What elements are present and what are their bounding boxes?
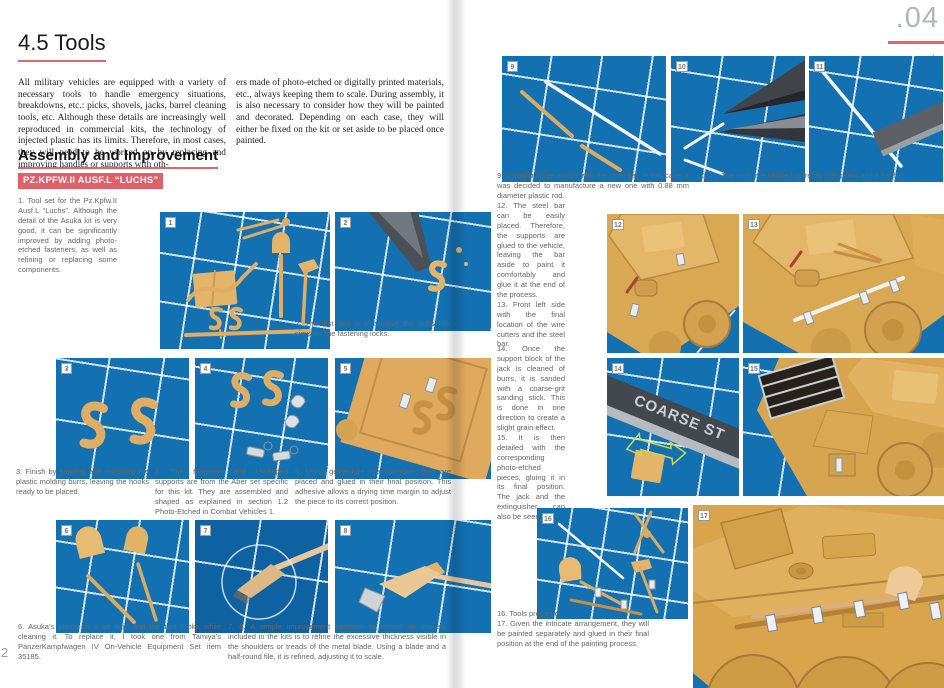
photo-number-badge: 2 xyxy=(340,217,351,228)
photo-11: 11 xyxy=(809,56,943,182)
photo-3-illustration xyxy=(56,358,189,479)
white-rod-shape xyxy=(546,82,660,154)
photo-number-badge: 4 xyxy=(200,363,211,374)
photo-10: 10 xyxy=(671,56,805,182)
photo-11-illustration xyxy=(809,56,943,182)
accent-line xyxy=(888,41,944,44)
s-hook-shape xyxy=(266,374,281,403)
photo-5-illustration xyxy=(335,358,491,479)
photo-13: 13 xyxy=(743,214,944,353)
pe-u-supports-shape xyxy=(285,395,305,427)
broken-shovel-head-shape xyxy=(73,524,105,559)
photo-14-illustration: COARSE ST xyxy=(607,358,739,496)
page-number-right: .04 xyxy=(896,2,939,35)
photo-15-illustration xyxy=(743,358,944,496)
photo-number-badge: 16 xyxy=(542,513,554,524)
caption-10-11: 10, 11. The ends are shaped correctly wi… xyxy=(697,171,905,181)
photo-number-badge: 1 xyxy=(165,217,176,228)
metal-blade-shape xyxy=(359,588,385,612)
plastic-rod-shape xyxy=(522,92,572,136)
section-title: 4.5 Tools xyxy=(18,30,106,62)
photo-10-illustration xyxy=(671,56,805,182)
tow-bar-shape xyxy=(186,330,310,338)
photo-4-illustration xyxy=(195,358,328,479)
s-hook-shape xyxy=(211,309,221,328)
photo-number-badge: 17 xyxy=(698,510,710,521)
hatch-shape xyxy=(641,221,684,252)
photo-12-illustration xyxy=(607,214,739,353)
s-hook-shape xyxy=(231,309,241,328)
shovel-blade-shape xyxy=(237,564,285,598)
caption-16: 16. Tools prepared. xyxy=(497,609,649,619)
s-hook-shape xyxy=(431,263,444,288)
hull-plate-shape xyxy=(340,358,491,479)
photo-9: 9 xyxy=(502,56,666,182)
photo-8-illustration xyxy=(335,520,491,633)
flat-file-shape xyxy=(873,102,943,157)
photo-number-badge: 6 xyxy=(61,525,72,536)
caption-3: 3. Finish by sanding and removing the pl… xyxy=(16,467,149,497)
stowage-box-shape xyxy=(892,370,939,404)
caption-16-17: 16. Tools prepared. 17. Given the intric… xyxy=(497,609,649,649)
page-gutter xyxy=(446,0,466,688)
caption-17: 17. Given the intricate arrangement, the… xyxy=(497,619,649,649)
caption-1: 1. Tool set for the Pz.Kpfw.II Ausf.L “L… xyxy=(18,196,117,275)
photo-6-illustration xyxy=(56,520,189,633)
photo-number-badge: 13 xyxy=(748,219,760,230)
photo-number-badge: 3 xyxy=(61,363,72,374)
photo-number-badge: 8 xyxy=(340,525,351,536)
photo-17: 17 xyxy=(693,505,944,688)
caption-4: 4. The fasteners and U-shaped supports a… xyxy=(155,467,288,516)
white-rod-shape xyxy=(685,124,723,148)
photo-3: 3 xyxy=(56,358,189,479)
shovel-blade-shape xyxy=(379,566,441,598)
photo-9-illustration xyxy=(502,56,666,182)
s-hook-shape xyxy=(84,406,104,444)
pe-clamp-shape xyxy=(836,458,842,472)
shovel-shape xyxy=(272,232,290,316)
photo-number-badge: 7 xyxy=(200,525,211,536)
sprocket-shape xyxy=(336,419,358,441)
stowage-box-shape xyxy=(911,214,944,274)
caption-6: 6. Asuka’s plastic is a bit rigid and th… xyxy=(18,622,221,662)
s-hook-shape xyxy=(134,402,154,440)
photo-7: 7 xyxy=(195,520,328,633)
wheel-hub-shape xyxy=(895,460,915,480)
photo-number-badge: 10 xyxy=(676,61,688,72)
photo-16: 16 xyxy=(537,508,688,619)
photo-16-illustration xyxy=(537,508,688,619)
s-hook-shape xyxy=(234,376,249,405)
photo-2: 2 xyxy=(335,212,491,331)
photo-13-illustration xyxy=(743,214,944,353)
pe-fasteners-shape xyxy=(246,442,298,461)
subsection-title: Assembly and Improvement xyxy=(18,147,218,169)
intro-column-2: ers made of photo-etched or digitally pr… xyxy=(236,78,444,171)
photo-17-illustration xyxy=(693,505,944,688)
photo-15: 15 xyxy=(743,358,944,496)
photo-12: 12 xyxy=(607,214,739,353)
caption-14-15: 14. Once the support block of the jack i… xyxy=(497,344,565,522)
caption-9: 9. A similar issue occurs with the steel… xyxy=(497,171,689,201)
photo-number-badge: 15 xyxy=(748,363,760,374)
shovel-shape xyxy=(554,554,625,606)
hatch-shape xyxy=(822,533,875,559)
photo-7-illustration xyxy=(195,520,328,633)
photo-5: 5 xyxy=(335,358,491,479)
photo-14: COARSE ST 14 xyxy=(607,358,739,496)
photo-6: 6 xyxy=(56,520,189,633)
smoke-launcher-shape xyxy=(795,270,819,286)
plastic-rod-shape xyxy=(582,146,620,170)
caption-2: 2. The first step is to remove the stubs… xyxy=(295,319,451,339)
wheel-hub-shape xyxy=(882,319,904,341)
photo-8: 8 xyxy=(335,520,491,633)
caption-5: 5. Using gel-texture cyanoacrylate, they… xyxy=(295,467,451,507)
port-shape xyxy=(796,568,806,575)
caption-12-13: 12. The steel bar can be easily placed. … xyxy=(497,201,565,349)
axe-shape xyxy=(298,259,319,324)
handle-stick-shape xyxy=(88,576,134,622)
wheel-hub-shape xyxy=(698,315,716,333)
caption-12: 12. The steel bar can be easily placed. … xyxy=(497,201,565,300)
photo-number-badge: 12 xyxy=(612,219,624,230)
smoke-launcher-shape xyxy=(635,280,657,296)
photo-number-badge: 9 xyxy=(507,61,518,72)
wire-cutters-shape xyxy=(635,512,663,552)
photo-4: 4 xyxy=(195,358,328,479)
file-blade-shape xyxy=(365,212,431,272)
caption-13: 13. Front left side with the final locat… xyxy=(497,300,565,349)
photo-2-illustration xyxy=(335,212,491,331)
full-shovel-shape xyxy=(123,524,156,620)
hatch-shape xyxy=(805,219,856,255)
caption-14: 14. Once the support block of the jack i… xyxy=(497,344,565,433)
pliers-shape xyxy=(719,60,805,142)
kit-label: PZ.KPFW.II AUSF.L “LUCHS” xyxy=(18,173,163,189)
shovel-handle-shape xyxy=(271,546,328,570)
photo-number-badge: 14 xyxy=(612,363,624,374)
page-number-left: 2 xyxy=(1,645,8,660)
photo-number-badge: 5 xyxy=(340,363,351,374)
photo-number-badge: 11 xyxy=(814,61,825,72)
book-spread: 2 4.5 Tools All military vehicles are eq… xyxy=(0,0,944,688)
caption-7-8: 7, 8. A simple improvement common to alm… xyxy=(228,622,446,662)
